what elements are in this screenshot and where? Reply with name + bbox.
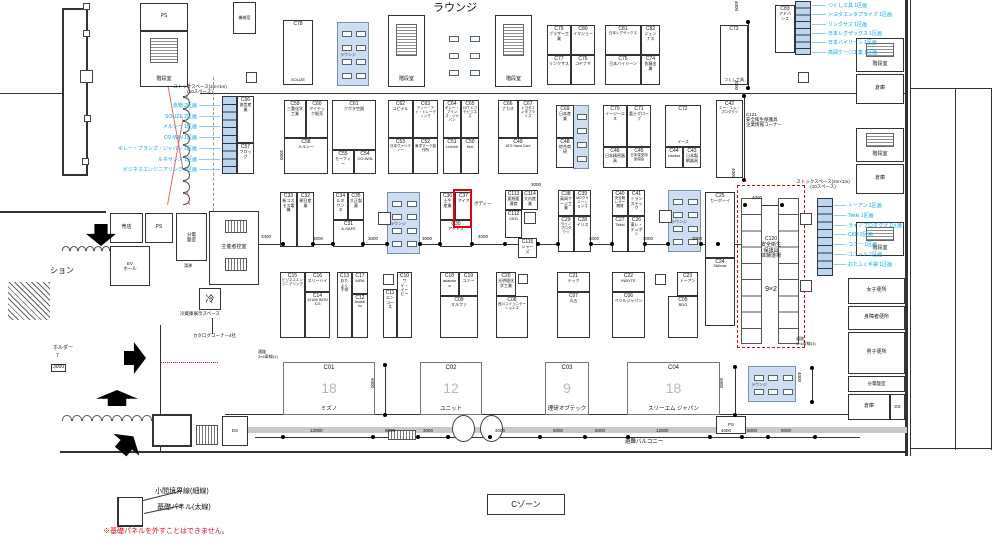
wall-line [225,427,907,433]
stock-list-item: リンクサス 1区画 [828,21,948,28]
dimension-node [733,365,737,369]
lounge-table-icon [392,241,402,247]
stock-leader-line [199,126,220,127]
dimension-node [813,435,817,439]
lounge-table-icon [449,53,459,59]
booth-C01[interactable]: C0118ミズノ [283,362,375,415]
lounge-table-icon [356,59,366,65]
booth-C31[interactable]: C31A-SAFE [333,220,364,247]
dimension-label: 3000 [422,236,432,241]
lounge-table-icon [449,36,459,42]
booth-C48[interactable]: C48綜合商研 [556,138,574,168]
stock-list-item: ビジネスエンジニアリング 2区画 [57,166,197,173]
label: 通路 3×6車線(3) [796,337,816,346]
dimension-label: 3000 [279,150,284,160]
lounge-table-icon [356,31,366,37]
booth-C49[interactable]: C49ATG Hand Care [498,138,538,174]
dimension-label: 4000 [797,372,802,382]
lounge-table-icon [449,70,459,76]
booth-C65[interactable]: C65NTTドコモビジネス [461,100,479,138]
dimension-node [610,242,614,246]
lounge-table-icon [392,228,402,234]
dimension-node [383,413,387,417]
dimension-node [281,242,285,246]
booth-C33[interactable]: C33新コスモス電機 [280,192,297,247]
booth-C76[interactable]: C76コヤナギ [571,55,595,85]
booth-C16[interactable]: C16スリーハイ [305,272,330,292]
legend-panel-label: 基礎パネル(太線) [157,502,211,512]
lounge-area: ラウンジ [387,192,420,254]
stock-leader-line [199,105,220,106]
booth-C61[interactable]: C61クボタ空調 [332,100,376,150]
booth-C60[interactable]: C60アイテック販売 [306,100,328,138]
lounge-table-icon [673,239,683,245]
room-wall [152,414,192,447]
room-男子便所: 男子便所 [848,332,905,374]
booth-C25[interactable]: C25カーボーイ [705,192,735,258]
lounge-table-icon [470,53,480,59]
entrance-arrow [124,342,146,374]
stock-leader-line [812,5,826,6]
dimension-label: 8000 [385,428,395,433]
dimension-node [331,242,335,246]
stock-list-item: トヨタエンタプライズ 1区画 [828,11,948,18]
dimension-label: 3000 [589,236,599,241]
booth-C52[interactable]: C52東洋マーク製作所 [413,138,438,174]
lounge-table-icon [577,156,587,162]
stock-leader-line [812,52,826,53]
booth-C66[interactable]: C66ナカオ [498,100,518,138]
booth-C77[interactable]: C77リンクサス [547,55,571,85]
stock-list-item: ギレー・ブランズ・ジャパン 1区画 [57,145,197,152]
dimension-label: 4000 [731,168,736,178]
booth-C57[interactable]: C57フロッグ [237,143,254,174]
c120-cells [778,198,799,344]
ground-hatch [8,282,50,320]
dimension-node [743,203,747,207]
booth-C83[interactable]: C83アドバンス [775,5,795,53]
booth-C78[interactable]: C78SOLIZE [283,20,313,85]
lounge-table-icon [783,375,793,381]
stock-leader-line [834,234,846,235]
stock-box [83,30,90,37]
stock-leader-line [834,254,846,255]
stock-list-item: おたふく手袋 1区画 [848,261,968,268]
wall-line [911,448,991,449]
stock-leader-line [834,225,846,226]
wall-line [0,93,62,94]
stock-leader-line [812,24,826,25]
label: ラウンジ [433,2,477,15]
dimension-label: 3000 [495,428,505,433]
dimension-node [361,242,365,246]
lounge-table-icon [577,114,587,120]
entrance-arrow [108,425,147,462]
room-冷: 冷 [199,288,221,310]
booth-C41[interactable]: C41トランステック [628,190,645,216]
lounge-area: ラウンジ [337,22,369,86]
dimension-node [746,20,750,24]
stock-space-cells-right [817,198,833,276]
dimension-label: 12000 [310,428,323,433]
booth-C09[interactable]: C09オルファ [440,296,478,338]
room-倉庫: 倉庫 [848,394,890,420]
stock-list-item: ライノプロダクツ 1区画 [848,222,968,229]
stock-leader-line [199,159,220,160]
booth-C20[interactable]: C20光明理化学工業 [496,272,516,296]
lounge-table-icon [407,241,417,247]
lounge-table-icon [407,201,417,207]
booth-C63[interactable]: C63ティー・アイ・トレーディング [413,100,438,138]
stock-leader-line [812,14,826,15]
booth-C14[interactable]: C14AYUMI BIONICS [305,292,330,338]
room-売店: 売店 [110,213,143,243]
label: 湯沸 [184,264,192,269]
wall-line [213,77,214,211]
booth-C62[interactable]: C62ユピテル [388,100,413,138]
dimension-node [716,242,720,246]
dimension-node [733,413,737,417]
lounge-table-icon [342,59,352,65]
dimension-label: 6000 [719,378,724,388]
lounge-area [437,25,492,87]
dimension-label: 4000 [721,428,731,433]
dimension-label: 6000 [747,428,757,433]
wall-line [212,318,213,334]
dimension-label: 3000 [423,428,433,433]
booth-C40[interactable]: C40安全靴レザー開発 [612,190,628,216]
label: 7 [56,354,59,360]
booth-C05[interactable]: C05BDG [668,296,698,338]
hatched-block [225,258,247,271]
dimension-label: 3000 [692,236,702,241]
stock-box [83,3,90,10]
dimension-label: 6000 [553,428,563,433]
room-倉庫: 倉庫 [856,164,904,194]
stock-leader-line [199,116,220,117]
lounge-table-icon [688,199,698,205]
booth-C38[interactable]: C38高岡ケージ工業 [558,190,574,216]
lounge-area: ラウンジ [668,190,701,252]
lounge-table-icon [768,375,778,381]
dimension-node [371,435,375,439]
booth-C07[interactable]: C07丸五 [557,292,590,338]
lounge-table-icon [673,226,683,232]
booth-C53[interactable]: C53日本ヴァリティー [388,138,413,174]
stock-leader-line [199,137,220,138]
lounge-table-icon [768,389,778,395]
dimension-node [742,94,746,98]
stock-leader-line [812,33,826,34]
booth-C59[interactable]: C59三重化学工業 [284,100,306,138]
highlighted-booth-C37 [453,189,472,228]
lounge-table-icon [392,214,402,220]
booth-C50[interactable]: C50Kiei [461,138,479,174]
legend-warning-text: ※基礎パネルを外すことはできません。 [103,526,229,536]
booth-C51[interactable]: C51LiveAir [443,138,461,174]
label: ストックスペース(2m×1m) (10スペース) [788,179,858,189]
lounge-table-icon [577,128,587,134]
room-PS: PS [140,3,188,31]
booth-C42[interactable]: C42エー・エム・プロダクツ [716,100,743,178]
stock-list-item: Tekki 1区画 [848,212,968,219]
dimension-label: 5000 [595,428,605,433]
booth-C64[interactable]: C64ギレー・ブランズ・ジャパン [443,100,461,138]
booth-C19[interactable]: C19コミー [459,272,478,296]
stock-leader-line [834,264,846,265]
dimension-label: 4000 [752,195,762,200]
dimension-node [311,242,315,246]
label: ストックスペース(2m×1m) (10スペース) [168,84,232,94]
lounge-area: ラウンジ [748,366,796,402]
room-EVホール: EV ホール [110,246,150,286]
wall-line [385,365,386,415]
dimension-node [810,400,814,404]
booth-C55[interactable]: C55モーフィー [332,150,354,174]
lounge-table-icon [356,45,366,51]
stock-box [524,212,536,224]
stock-list-item: 日本バイリーン 1区画 [828,39,948,46]
wall-line [812,368,813,402]
stock-box [655,274,666,285]
label: ホルダー [53,346,73,352]
booth-C58[interactable]: C58メルシー [284,138,328,174]
booth-C35[interactable]: C35大正製薬 [348,192,364,220]
lounge-table-icon [688,226,698,232]
entrance-arrow [96,390,138,406]
dimension-node [385,242,389,246]
booth-C21[interactable]: C21テック [557,272,590,292]
dimension-label: 12000 [656,428,669,433]
booth-C27[interactable]: C27Tekki [612,216,628,252]
booth-C43[interactable]: C43日本製網器具 [683,147,701,168]
stock-list-item: 赤帽 2区画 [57,102,197,109]
lounge-table-icon [673,212,683,218]
stock-leader-line [834,215,846,216]
dimension-label: 3000 [368,236,378,241]
dimension-node [742,178,746,182]
wall-line [748,22,749,88]
booth-C24[interactable]: C24Skillnote [705,258,735,326]
booth-C45[interactable]: C45日本保安用品協会 [627,147,651,168]
stock-box [800,280,812,292]
booth-C75[interactable]: C75日本バイリーン [605,55,641,85]
booth-C112[interactable]: C112CKD [505,210,522,238]
stock-list-item: メルシー 1区画 [57,123,197,130]
zone-label-box: Cゾーン [487,494,565,515]
booth-C12[interactable]: C12Asahicho [352,294,368,338]
stock-box [82,158,89,165]
lounge-table-icon [577,142,587,148]
booth-C72[interactable]: C72イーズ [665,105,701,147]
booth-C17[interactable]: C17MRA [352,272,368,294]
booth-C54[interactable]: C54CO-WIN [354,150,376,174]
wall-line [744,96,745,180]
scallop-band [62,246,110,251]
lounge-area [573,105,589,169]
c120-cells [741,198,762,344]
dimension-label: 6000 [370,378,375,388]
room-階段室: 階段室 [140,31,188,87]
room-分電盤室: 分電盤室 [848,376,905,392]
booth-C82[interactable]: C82ジェンナス [641,25,660,55]
c120-size-label: 9×2 [740,286,802,294]
wall-line [0,211,106,213]
booth-C26[interactable]: C26東レ・デュポン [628,216,645,252]
booth-C32[interactable]: C32朝日産業 [297,192,314,247]
booth-C114[interactable]: C114大内産業 [522,190,538,210]
booth-C56[interactable]: C56協営産業 [237,96,254,143]
lounge-table-icon [470,70,480,76]
stock-box [80,70,93,83]
stock-box [84,115,91,122]
stock-box [800,213,812,225]
booth-C34[interactable]: C34ルネサンス [333,192,348,220]
booth-C67[interactable]: C67トヨタエンタプライズ [518,100,538,138]
booth-C74[interactable]: C74佐藤金属 [641,55,660,85]
booth-C02[interactable]: C0212ユニット [420,362,482,415]
booth-C22[interactable]: C22INBYTE [612,272,645,292]
stock-list-item: 日本レグザックス 1区画 [828,30,948,37]
dimension-node [416,435,420,439]
dimension-label: 8000 [781,428,791,433]
booth-C13[interactable]: C13おたふく手袋 [337,272,352,338]
lounge-table-icon [407,228,417,234]
stock-box [798,72,809,83]
label: ション [50,266,74,275]
room-階段室: 階段室 [856,128,904,162]
stock-list-item: CO-WIN 1区画 [57,134,197,141]
dimension-node [418,242,422,246]
wall-line [60,451,908,453]
dimension-node [583,435,587,439]
booth-C28[interactable]: C28イリス [574,216,591,252]
booth-C73[interactable]: C73つくし工具 [720,25,748,85]
stock-space-cells-left [222,96,237,174]
dimension-node [589,242,593,246]
lounge-table-icon [342,31,352,37]
dimension-node [488,435,492,439]
dimension-node [470,242,474,246]
room-DS: DS [222,416,248,446]
room-PS: PS [145,213,173,243]
dimension-label: 3000 [643,236,653,241]
booth-C69[interactable]: C69日本産業 [556,105,574,138]
booth-C29[interactable]: C29ライノプロダクツ [558,216,574,252]
dimension-node [780,203,784,207]
dimension-node [446,435,450,439]
booth-C70[interactable]: C70イージーエス [603,105,627,147]
room-機械室: 機械室 [233,2,256,34]
label: カタログコーナー4社 [193,333,236,338]
dimension-node [281,435,285,439]
booth-C80[interactable]: C80イマジョー [571,25,595,55]
booth-C39[interactable]: C39MDクリエーションズ [574,190,591,216]
dimension-label: 3000 [531,182,541,187]
lounge-table-icon [392,201,402,207]
label: 冷蔵庫展示スペース [180,311,220,316]
room-身障者便所: 身障者便所 [848,306,905,330]
dimension-node [708,435,712,439]
lounge-table-icon [688,212,698,218]
dimension-node [538,435,542,439]
booth-C15[interactable]: C15ビジネスエンジニアリング [280,272,305,338]
stock-list-item: ルネサンス 1区画 [57,156,197,163]
wall-line [955,88,956,450]
label: 3000 [51,364,66,372]
lounge-table-icon [754,375,764,381]
stock-list-item: CKD 2区画 [848,231,968,238]
dimension-node [536,242,540,246]
dimension-label: 3400 [261,234,271,239]
stock-leader-line [199,148,220,149]
booth-C08[interactable]: C08西川コミュニケーションズ [496,296,528,338]
pillar [452,415,475,442]
booth-C06[interactable]: C06ペツルジャパン [612,292,645,338]
lounge-table-icon [342,73,352,79]
booth-C115[interactable]: C115シャーズ [518,238,537,258]
dimension-node [740,435,744,439]
booth-C10[interactable]: C10ワイ・イービー [397,272,412,338]
room-階段室: 階段室 [388,15,425,87]
booth-C113[interactable]: C113亜細亜通商 [505,190,522,210]
booth-C11[interactable]: C11エンコース [383,289,397,338]
booth-C23[interactable]: C23トーアン [677,272,698,296]
dimension-label: 4000 [734,1,739,11]
stock-list-item: コミー 1区画 [848,241,968,248]
booth-C18[interactable]: C18asatama [440,272,459,296]
stock-leader-line [834,244,846,245]
stock-list-item: ユニット 1区画 [848,251,968,258]
wall-line [991,88,992,450]
lounge-table-icon [754,389,764,395]
booth-C46[interactable]: C46日本精密器具 [603,147,627,168]
dimension-node [503,242,507,246]
scallop-band [62,415,152,421]
dimension-node [699,242,703,246]
room-分電盤室: 分電 盤室 [176,213,207,261]
stock-leader-line [834,205,846,206]
dimension-node [438,242,442,246]
zone-label: Cゾーン [511,499,540,510]
lounge-table-icon [342,45,352,51]
dimension-node [556,242,560,246]
label: 避難バルコニー [625,439,663,445]
hatched-block [225,220,247,233]
booth-C04[interactable]: C0418スリーエム ジャパン [627,362,720,415]
lounge-table-icon [783,389,793,395]
label: 通路 3×6車線(1) [258,350,278,359]
stock-space-cells-top_right [795,1,811,55]
lounge-table-icon [673,199,683,205]
legend-sample-box [117,497,143,527]
dimension-label: 3000 [734,80,739,90]
hatched-block [196,425,218,445]
booth-C71[interactable]: C71富士グローブ [627,105,651,147]
room-倉庫: 倉庫 [856,74,904,104]
wall-line [160,362,218,363]
floor-plan: Cゾーン 小間境界線(細線) 基礎パネル(太線) ※基礎パネルを外すことはできま… [0,0,1000,550]
booth-C81[interactable]: C81日本レグザックス [605,25,641,55]
booth-C03[interactable]: C039理研オプテック [545,362,589,415]
c120-label: C120 安全衛生 保護具 体験道場 [740,237,802,260]
label: C121 安全衛生保護具 企業情報コーナー [746,112,782,128]
stock-box [518,274,528,284]
dimension-node [810,366,814,370]
booth-C79[interactable]: C79ブラザー工業 [547,25,571,55]
booth-C44[interactable]: C44Usefus [665,147,683,168]
stock-list-item: SOLIZE 2区画 [57,113,197,120]
